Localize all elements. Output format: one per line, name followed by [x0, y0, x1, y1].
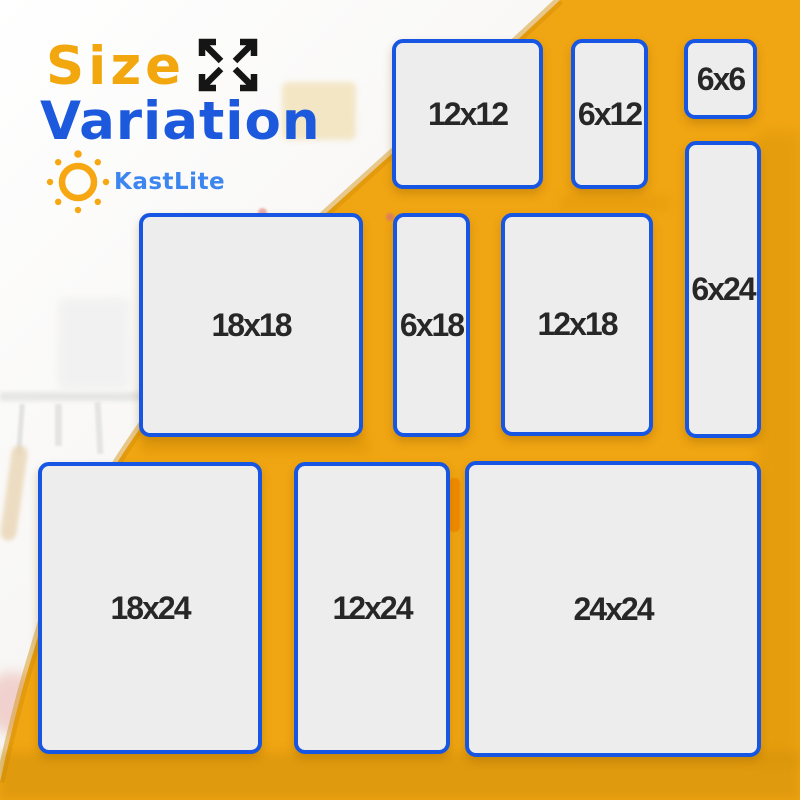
size-panel-label: 6x18	[400, 307, 463, 344]
size-panel-label: 6x6	[697, 61, 744, 98]
size-panel-label: 18x18	[212, 307, 291, 344]
size-panel-label: 12x12	[428, 96, 507, 133]
size-panel-18x24: 18x24	[38, 462, 262, 754]
size-panel-12x24: 12x24	[294, 462, 450, 754]
size-panel-18x18: 18x18	[139, 213, 363, 437]
brand-name: KastLite	[114, 169, 225, 195]
size-panel-6x24: 6x24	[685, 141, 761, 438]
page-title-main: Variation	[40, 95, 321, 148]
size-panel-label: 6x24	[691, 271, 754, 308]
brand-logo: KastLite	[46, 150, 306, 216]
size-panel-6x12: 6x12	[571, 39, 648, 189]
size-panel-12x18: 12x18	[501, 213, 653, 436]
size-panel-6x6: 6x6	[684, 39, 757, 119]
size-panel-6x18: 6x18	[393, 213, 470, 437]
size-panel-label: 6x12	[578, 96, 641, 133]
size-panel-label: 12x18	[538, 306, 617, 343]
size-panel-label: 12x24	[333, 590, 412, 627]
sun-icon	[46, 150, 110, 214]
product-infographic: Size Variation KastLite 12x126x126x66x24…	[0, 0, 800, 800]
page-title-accent: Size	[46, 40, 185, 93]
size-panel-12x12: 12x12	[392, 39, 543, 189]
size-panel-24x24: 24x24	[465, 461, 761, 757]
expand-arrows-icon	[196, 36, 260, 96]
size-panel-label: 18x24	[111, 590, 190, 627]
size-panel-label: 24x24	[574, 591, 653, 628]
